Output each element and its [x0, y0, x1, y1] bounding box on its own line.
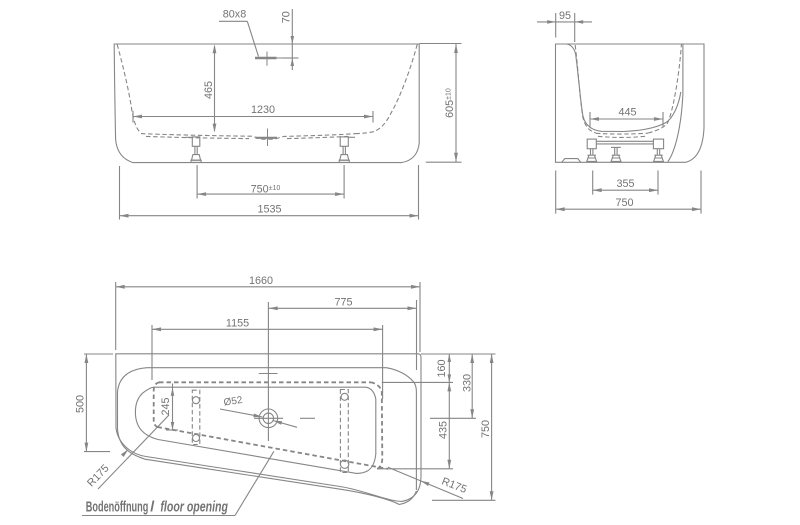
svg-text:80x8: 80x8	[223, 9, 246, 21]
svg-text:750: 750	[615, 197, 633, 209]
svg-text:750±10: 750±10	[251, 183, 281, 195]
svg-text:R175: R175	[85, 462, 112, 489]
svg-text:1535: 1535	[257, 203, 281, 215]
svg-text:70: 70	[281, 11, 293, 23]
svg-text:445: 445	[618, 106, 636, 118]
svg-text:R175: R175	[440, 475, 468, 495]
svg-text:355: 355	[616, 178, 634, 190]
svg-text:330: 330	[462, 374, 474, 392]
svg-text:500: 500	[75, 395, 87, 413]
svg-text:465: 465	[203, 81, 215, 99]
svg-text:1155: 1155	[226, 317, 249, 329]
svg-text:1660: 1660	[249, 275, 273, 287]
svg-text:Ø52: Ø52	[223, 395, 244, 409]
svg-text:435: 435	[438, 421, 450, 439]
svg-text:605±10: 605±10	[444, 88, 456, 118]
svg-text:160: 160	[436, 359, 448, 377]
svg-text:Bodenöffnung: Bodenöffnung	[86, 499, 149, 515]
svg-text:floor opening: floor opening	[160, 499, 228, 515]
svg-text:245: 245	[160, 397, 172, 415]
svg-text:95: 95	[559, 10, 571, 22]
svg-text:1230: 1230	[251, 104, 275, 116]
svg-text:775: 775	[334, 296, 352, 308]
svg-text:750: 750	[480, 420, 492, 438]
svg-text:/: /	[150, 499, 154, 515]
